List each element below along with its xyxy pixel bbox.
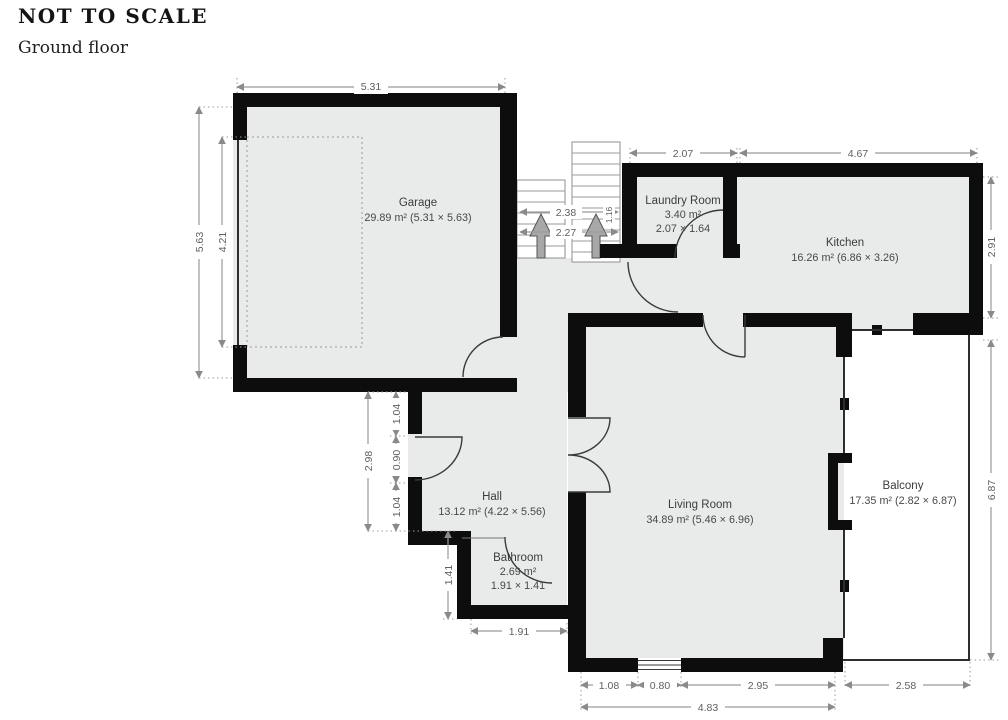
passage-floor: [517, 313, 568, 392]
dim-stairs-width: 1.16: [603, 203, 615, 227]
kitchen-name: Kitchen: [826, 237, 864, 249]
svg-text:2.58: 2.58: [896, 680, 917, 692]
laundry-wall-top: [622, 163, 737, 177]
living-wall-top-right: [743, 313, 852, 327]
svg-text:1.16: 1.16: [604, 206, 614, 223]
dim-balcony-width: 2.58: [845, 678, 970, 692]
corridor-floor: [517, 258, 743, 313]
kitchen-floor: [737, 163, 983, 335]
living-wall-left-lower: [568, 492, 586, 658]
svg-text:5.63: 5.63: [194, 232, 206, 253]
laundry-wall-right: [723, 163, 737, 258]
svg-text:1.41: 1.41: [443, 565, 455, 586]
garage-name: Garage: [399, 197, 437, 209]
dim-bathroom-width: 1.91: [471, 624, 567, 638]
hall-wall-left-lower: [408, 477, 422, 531]
bathroom-wall-bottom: [457, 605, 574, 619]
dim-balcony-depth: 6.87: [983, 340, 998, 660]
svg-text:1.08: 1.08: [599, 680, 620, 692]
laundry-size: 2.07 × 1.64: [656, 223, 710, 235]
living-wall-top-left: [568, 313, 703, 327]
hall-name: Hall: [482, 491, 502, 503]
dim-hall-seg-top: 1.04: [389, 392, 403, 436]
svg-text:0.90: 0.90: [391, 450, 403, 471]
bathroom-name: Bathroom: [493, 552, 543, 564]
balcony-area: 17.35 m² (2.82 × 6.87): [849, 495, 956, 507]
svg-text:2.91: 2.91: [986, 237, 998, 258]
laundry-area: 3.40 m²: [665, 209, 702, 221]
living-room-name: Living Room: [668, 499, 732, 511]
bathroom-area: 2.69 m²: [500, 566, 537, 578]
dim-hall-depth: 2.98: [360, 392, 375, 531]
dim-lr-window: 0.80: [638, 678, 681, 692]
svg-text:4.83: 4.83: [698, 702, 719, 714]
garage-area: 29.89 m² (5.31 × 5.63): [364, 212, 471, 224]
hall-wall-left-upper: [408, 392, 422, 434]
svg-text:2.07: 2.07: [673, 148, 694, 160]
living-room-area: 34.89 m² (5.46 × 6.96): [646, 514, 753, 526]
garage-wall-left-upper: [233, 93, 247, 140]
laundry-wall-bottom-stub: [723, 244, 740, 258]
garage-wall-right: [500, 93, 517, 337]
garage-wall-bottom: [233, 378, 517, 392]
living-pillar-left: [828, 453, 838, 530]
living-wall-left-upper: [568, 313, 586, 417]
dim-lr-seg1: 1.08: [581, 678, 638, 692]
hall-wall-bottom: [408, 531, 462, 545]
hall-area: 13.12 m² (4.22 × 5.56): [438, 506, 545, 518]
kitchen-area: 16.26 m² (6.86 × 3.26): [791, 252, 898, 264]
dim-laundry-width: 2.07: [630, 146, 737, 160]
svg-text:4.21: 4.21: [217, 232, 229, 253]
svg-text:5.31: 5.31: [361, 81, 382, 93]
svg-text:2.27: 2.27: [556, 227, 577, 239]
kitchen-wall-right: [969, 163, 983, 335]
dim-garage-width: 5.31: [237, 79, 505, 94]
laundry-wall-bottom: [600, 244, 677, 258]
bathroom-size: 1.91 × 1.41: [491, 580, 545, 592]
svg-text:2.95: 2.95: [748, 680, 769, 692]
floor-plan-svg: 5.31 5.63 4.21 2.38 2.27 1.16 2.0: [0, 0, 1008, 720]
svg-text:1.04: 1.04: [391, 497, 403, 518]
laundry-wall-left: [622, 163, 637, 258]
svg-text:2.98: 2.98: [363, 451, 375, 472]
kitchen-wall-step: [913, 313, 983, 335]
living-bottom-window: [638, 658, 681, 672]
dim-garage-inner-depth: 4.21: [214, 137, 229, 347]
dim-hall-door: 0.90: [389, 436, 403, 483]
kitchen-wall-top: [737, 163, 983, 177]
dim-garage-depth: 5.63: [191, 107, 206, 378]
living-wall-bottom-2: [681, 658, 823, 672]
garage-wall-top: [233, 93, 517, 107]
dim-hall-seg-bottom: 1.04: [389, 483, 403, 531]
dim-lr-seg2: 2.95: [681, 678, 835, 692]
laundry-name: Laundry Room: [645, 195, 720, 207]
living-wall-ne-corner: [836, 327, 852, 357]
svg-text:1.91: 1.91: [509, 626, 530, 638]
living-wall-se-step: [823, 638, 843, 672]
dim-lr-total: 4.83: [581, 700, 835, 714]
svg-text:2.38: 2.38: [556, 207, 577, 219]
living-wall-bottom-1: [568, 658, 638, 672]
svg-text:1.04: 1.04: [391, 404, 403, 425]
balcony-name: Balcony: [883, 480, 924, 492]
dim-kitchen-width: 4.67: [740, 146, 977, 160]
svg-text:6.87: 6.87: [986, 480, 998, 501]
living-pillar-bottom: [828, 520, 852, 530]
svg-text:0.80: 0.80: [650, 680, 671, 692]
dim-kitchen-depth: 2.91: [983, 177, 998, 318]
svg-text:4.67: 4.67: [848, 148, 869, 160]
